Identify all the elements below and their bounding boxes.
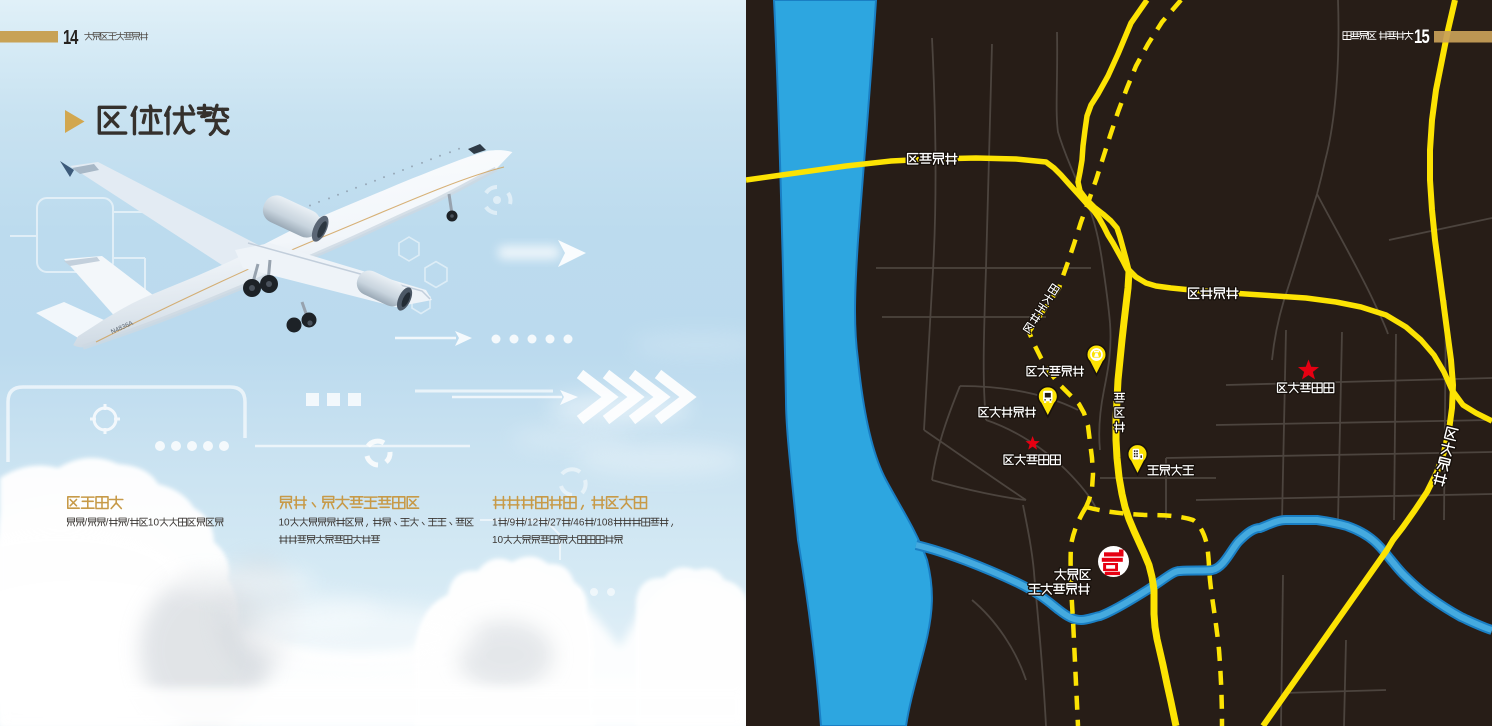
svg-text:10: 10 (148, 518, 160, 529)
svg-text:10: 10 (279, 518, 291, 529)
svg-text:10: 10 (492, 535, 504, 546)
svg-text:/9: /9 (507, 518, 516, 529)
svg-text:/12: /12 (524, 518, 538, 529)
svg-text:/108: /108 (594, 518, 614, 529)
svg-text:15: 15 (1414, 26, 1429, 47)
svg-text:/27: /27 (547, 518, 561, 529)
svg-text:1: 1 (492, 518, 498, 529)
svg-text:/: / (106, 518, 109, 529)
svg-text:14: 14 (63, 26, 79, 49)
svg-text:/: / (84, 518, 87, 529)
svg-text:/46: /46 (571, 518, 585, 529)
svg-text:/: / (127, 518, 130, 529)
